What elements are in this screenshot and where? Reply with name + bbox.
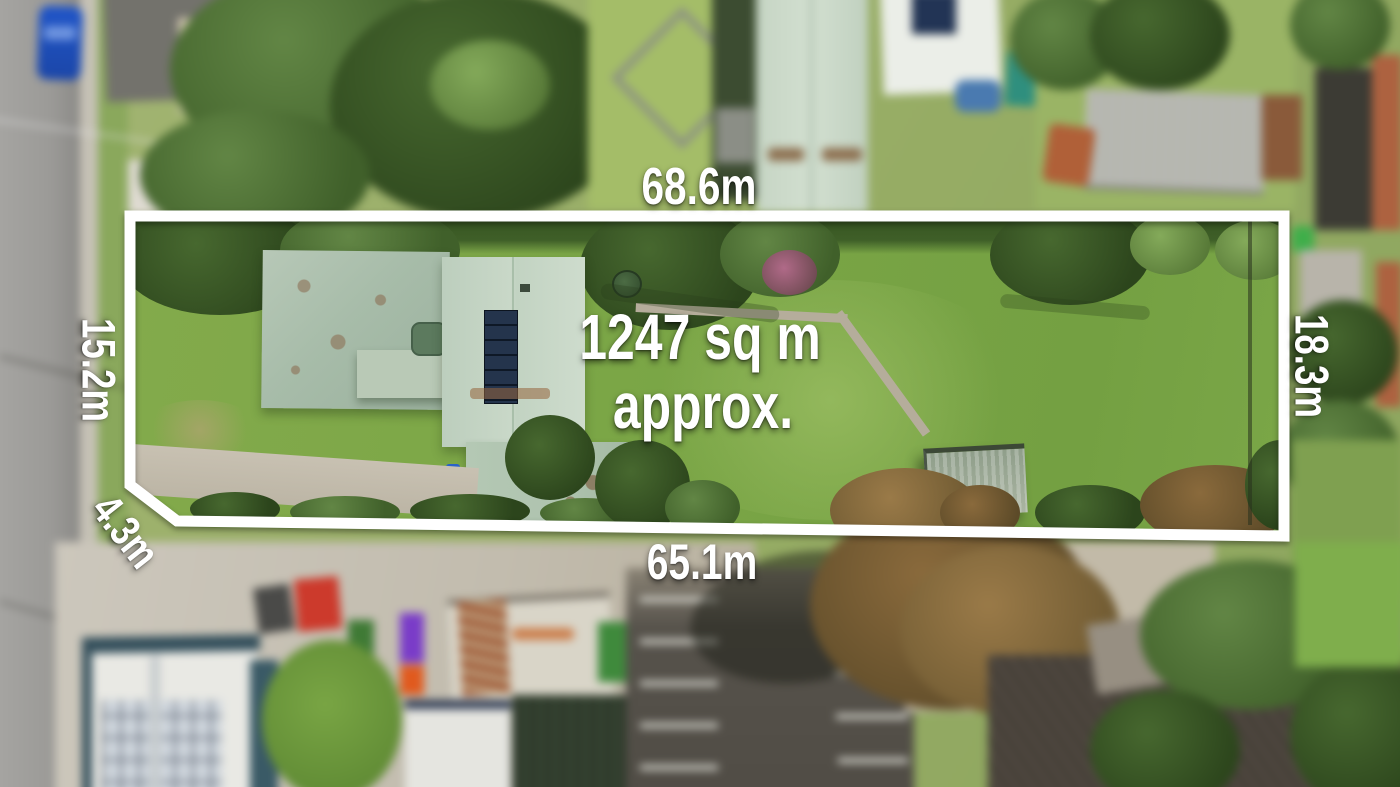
grey-box <box>716 108 754 163</box>
left-measurement-label: 15.2m <box>72 303 127 436</box>
tree <box>1215 220 1295 280</box>
shrub <box>1035 485 1145 540</box>
container-rust <box>458 599 511 696</box>
parking-line <box>838 758 908 763</box>
rust-streak <box>768 148 804 161</box>
warehouse-solar <box>102 700 222 787</box>
tree <box>1130 215 1210 275</box>
bright-lawn <box>1295 542 1400 667</box>
tree <box>430 40 550 130</box>
left-measurement-text: 15.2m <box>72 318 127 422</box>
rust-streak <box>470 388 550 399</box>
rust-streak <box>822 148 862 161</box>
tree <box>665 480 740 535</box>
aerial-photo: 68.6m 1247 sq m approx. 65.1m 15.2m 18.3… <box>0 0 1400 787</box>
brown-roof <box>1262 95 1302 180</box>
right-measurement-label: 18.3m <box>1285 299 1340 432</box>
solar-panels <box>912 0 956 34</box>
terracotta-roof <box>1372 55 1400 230</box>
parking-line <box>640 723 718 728</box>
tree <box>505 415 595 500</box>
left-house-extension <box>357 350 449 398</box>
green-car <box>1292 226 1314 253</box>
pergola-roof <box>512 695 638 787</box>
shrub <box>410 494 530 528</box>
blue-car <box>37 5 84 80</box>
top-measurement-text: 68.6m <box>641 157 756 217</box>
autumn-tree <box>940 485 1020 540</box>
tree <box>990 205 1150 305</box>
blue-tarp <box>955 80 1001 112</box>
shrub <box>190 492 280 526</box>
fence-line <box>1248 215 1252 525</box>
corrugated-roof <box>1083 89 1266 195</box>
small-white-roof <box>405 700 511 787</box>
red-skip-bin <box>294 576 342 632</box>
purple-bin <box>400 613 424 663</box>
shrub <box>290 496 400 528</box>
hall-ridge <box>810 0 813 213</box>
orange-bin <box>400 665 424 695</box>
container-text-smudge <box>512 628 574 640</box>
roof-pipe <box>150 655 160 787</box>
area-label-line1: 1247 sq m <box>545 300 855 374</box>
parking-line <box>836 714 908 719</box>
flowering-tree <box>762 250 817 295</box>
area-text-line2: approx. <box>613 369 793 443</box>
right-measurement-text: 18.3m <box>1285 314 1340 418</box>
area-label-line2: approx. <box>587 369 818 443</box>
parking-line <box>640 765 718 770</box>
warehouse-edge <box>82 645 92 787</box>
green-dumpster <box>598 622 628 682</box>
bottom-measurement-text: 65.1m <box>647 533 758 591</box>
roof-vent <box>520 284 530 292</box>
grey-bin <box>253 584 295 635</box>
top-measurement-label: 68.6m <box>625 157 772 217</box>
car-windshield <box>44 26 76 40</box>
bottom-measurement-label: 65.1m <box>631 533 773 591</box>
terracotta-shed <box>1042 123 1096 187</box>
parking-line <box>640 681 718 686</box>
grass-patch <box>262 640 402 787</box>
area-text-line1: 1247 sq m <box>579 300 820 374</box>
warehouse-frame <box>82 634 260 653</box>
